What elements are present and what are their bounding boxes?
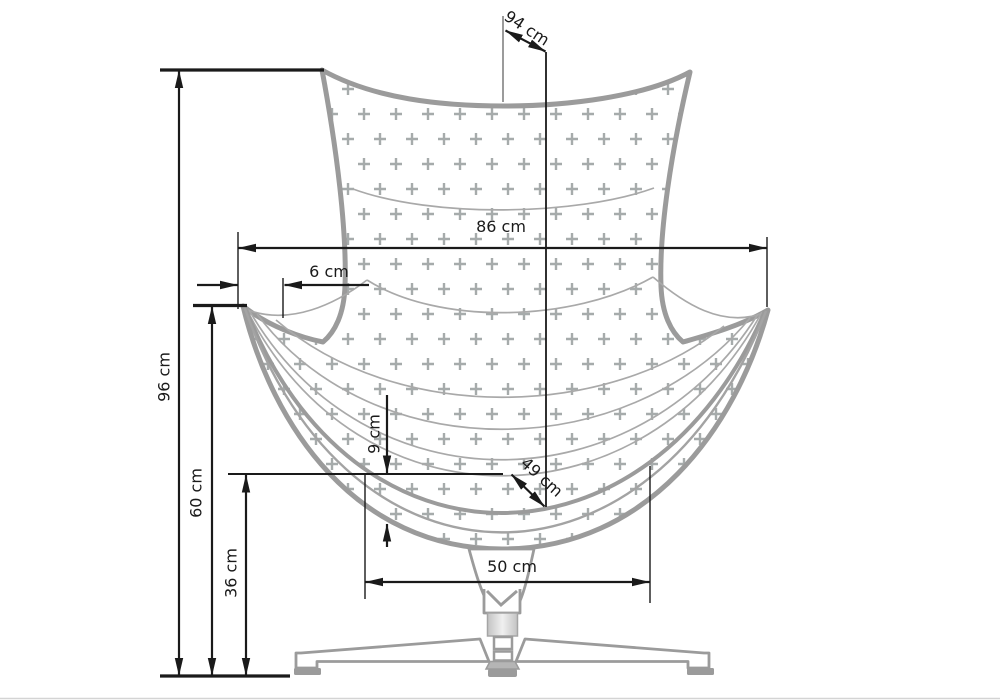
left-foot-pad	[294, 668, 321, 675]
piston-lower	[494, 652, 512, 661]
right-foot-pad	[687, 668, 714, 675]
dimension-label-86: 86 cm	[476, 217, 526, 236]
dimension-label-60: 60 cm	[187, 468, 206, 518]
dimension-diagram-page: 94 cm 86 cm 6 cm 96 cm 60 cm 36 cm 9 cm …	[0, 0, 1000, 700]
dimension-label-96: 96 cm	[155, 352, 174, 402]
dimension-label-6: 6 cm	[309, 262, 349, 281]
center-foot	[486, 662, 519, 670]
dimension-label-50: 50 cm	[487, 557, 537, 576]
dimension-label-9: 9 cm	[365, 414, 384, 454]
gas-lift-cylinder	[488, 613, 518, 636]
chair-dimension-drawing: 94 cm 86 cm 6 cm 96 cm 60 cm 36 cm 9 cm …	[0, 0, 1000, 700]
dimension-label-36: 36 cm	[222, 548, 241, 598]
center-foot-pad	[488, 669, 517, 677]
piston-upper	[494, 637, 512, 649]
